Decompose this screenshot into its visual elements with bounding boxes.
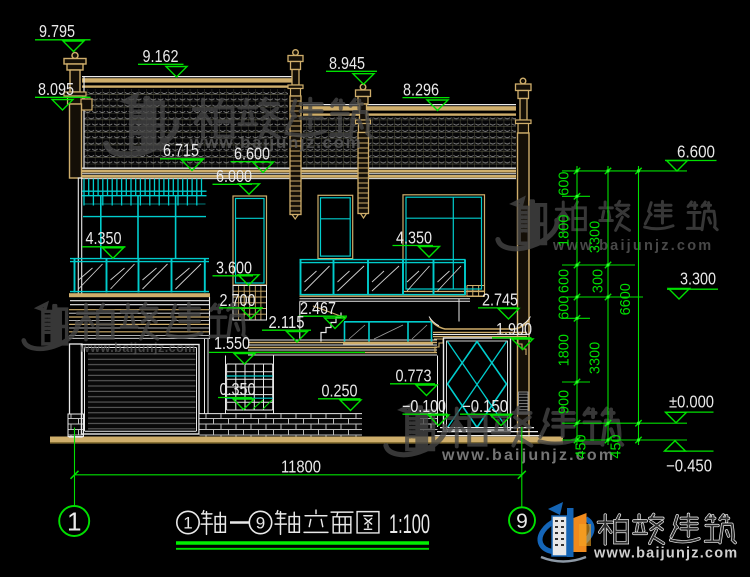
- svg-text:www.baijunjz.com: www.baijunjz.com: [189, 133, 362, 152]
- svg-text:0.773: 0.773: [396, 366, 432, 386]
- svg-text:2.115: 2.115: [269, 312, 305, 332]
- svg-text:300: 300: [591, 269, 607, 293]
- svg-text:6.715: 6.715: [163, 140, 199, 160]
- svg-text:9: 9: [516, 510, 528, 533]
- svg-text:8.095: 8.095: [38, 79, 74, 99]
- svg-text:9: 9: [256, 514, 265, 533]
- svg-text:6.000: 6.000: [216, 166, 252, 186]
- svg-text:8.945: 8.945: [329, 53, 365, 73]
- svg-text:www.baijunjz.com: www.baijunjz.com: [593, 546, 738, 562]
- svg-text:www.baijunjz.com: www.baijunjz.com: [552, 238, 713, 254]
- svg-text:450: 450: [609, 434, 625, 458]
- svg-text:4.350: 4.350: [86, 228, 122, 248]
- svg-text:−0.100: −0.100: [402, 396, 446, 416]
- svg-text:3300: 3300: [588, 342, 604, 374]
- svg-text:1.900: 1.900: [496, 319, 532, 339]
- svg-text:8.296: 8.296: [403, 80, 439, 100]
- svg-text:3300: 3300: [588, 221, 604, 253]
- svg-text:4.350: 4.350: [396, 227, 432, 247]
- svg-text:9.795: 9.795: [39, 21, 75, 41]
- svg-text:0.350: 0.350: [220, 379, 256, 399]
- svg-text:−0.450: −0.450: [666, 456, 712, 476]
- svg-text:450: 450: [574, 434, 590, 458]
- svg-text:6600: 6600: [618, 283, 634, 315]
- svg-text:900: 900: [557, 390, 573, 414]
- svg-text:2.745: 2.745: [482, 290, 518, 310]
- svg-text:−0.150: −0.150: [462, 396, 508, 416]
- svg-text:1:100: 1:100: [389, 509, 430, 539]
- svg-text:11800: 11800: [281, 457, 321, 477]
- svg-text:6.600: 6.600: [677, 142, 715, 162]
- svg-text:600: 600: [557, 171, 573, 195]
- svg-text:±0.000: ±0.000: [669, 392, 714, 412]
- svg-text:1800: 1800: [557, 334, 573, 366]
- svg-text:1: 1: [67, 507, 81, 537]
- svg-text:0.250: 0.250: [322, 381, 358, 401]
- svg-text:600: 600: [557, 269, 573, 293]
- svg-text:1800: 1800: [557, 215, 573, 247]
- svg-text:2.700: 2.700: [220, 290, 256, 310]
- svg-text:3.300: 3.300: [680, 269, 716, 289]
- svg-text:6.600: 6.600: [234, 144, 270, 164]
- svg-text:9.162: 9.162: [143, 46, 179, 66]
- svg-text:1.550: 1.550: [214, 333, 250, 353]
- svg-text:www.baijunjz.com: www.baijunjz.com: [79, 341, 196, 355]
- svg-text:1: 1: [183, 514, 192, 533]
- svg-text:2.467: 2.467: [300, 298, 336, 318]
- svg-text:600: 600: [557, 296, 573, 320]
